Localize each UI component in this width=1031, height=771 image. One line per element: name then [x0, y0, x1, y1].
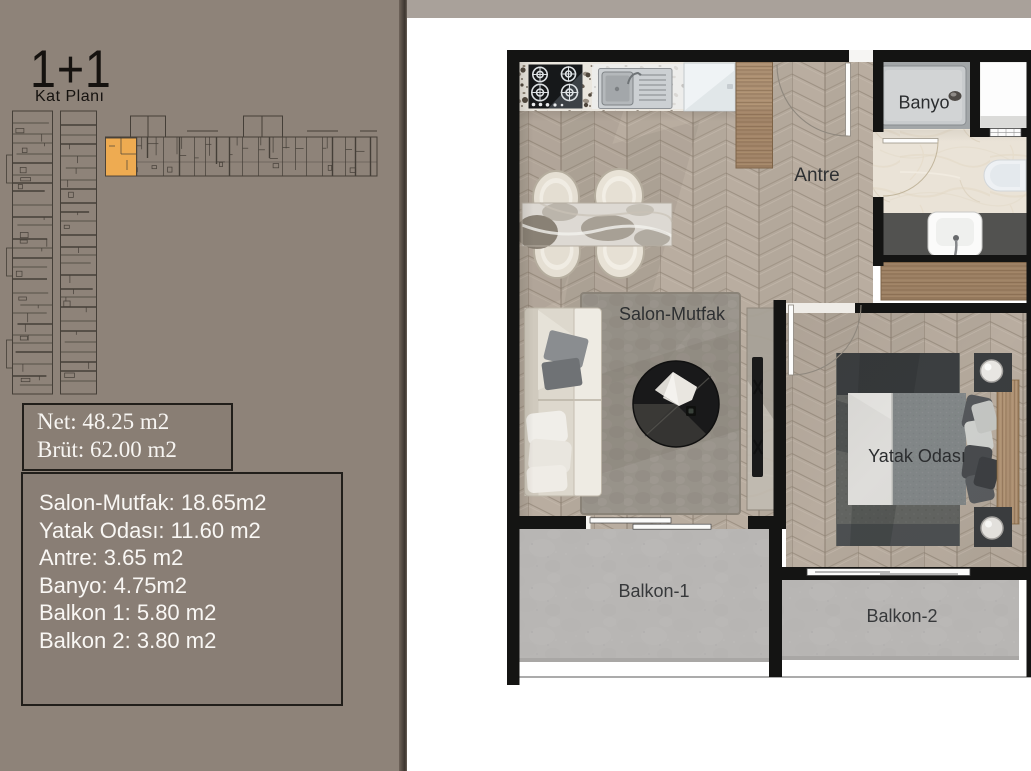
svg-text:Antre: Antre — [794, 165, 839, 186]
svg-text:Balkon-1: Balkon-1 — [618, 581, 689, 601]
svg-text:Balkon-2: Balkon-2 — [866, 606, 937, 626]
svg-text:Salon-Mutfak: Salon-Mutfak — [619, 304, 726, 324]
svg-text:Banyo: Banyo — [898, 93, 949, 113]
svg-text:Yatak Odası: Yatak Odası — [868, 446, 966, 466]
